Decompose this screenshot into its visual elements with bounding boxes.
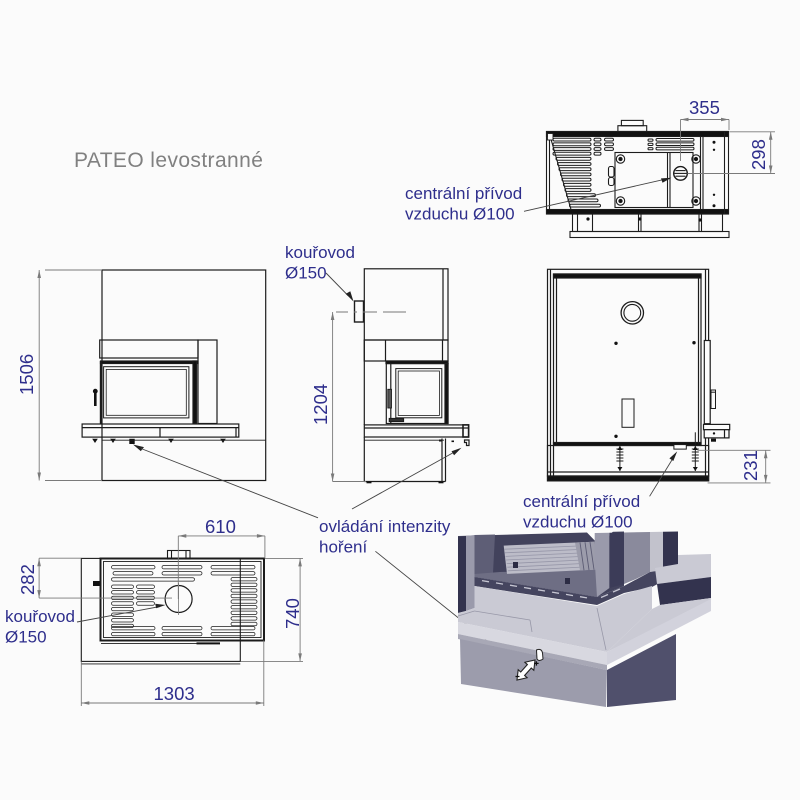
svg-text:1303: 1303	[154, 683, 195, 704]
svg-text:355: 355	[689, 97, 720, 118]
svg-text:740: 740	[282, 598, 303, 629]
svg-text:hoření: hoření	[319, 538, 367, 557]
svg-text:ovládání intenzity: ovládání intenzity	[319, 517, 451, 536]
svg-text:Ø150: Ø150	[5, 628, 47, 647]
svg-text:PATEO levostranné: PATEO levostranné	[74, 149, 263, 172]
svg-text:vzduchu Ø100: vzduchu Ø100	[523, 513, 633, 532]
svg-text:610: 610	[205, 516, 236, 537]
svg-text:Ø150: Ø150	[285, 264, 327, 283]
svg-text:231: 231	[740, 450, 761, 481]
svg-text:1506: 1506	[16, 354, 37, 395]
svg-text:298: 298	[748, 139, 769, 170]
svg-text:282: 282	[17, 564, 38, 595]
svg-text:centrální přívod: centrální přívod	[523, 492, 640, 511]
svg-text:1204: 1204	[310, 384, 331, 425]
svg-text:vzduchu Ø100: vzduchu Ø100	[405, 205, 515, 224]
svg-text:kouřovod: kouřovod	[5, 607, 75, 626]
svg-text:centrální přívod: centrální přívod	[405, 184, 522, 203]
svg-text:kouřovod: kouřovod	[285, 243, 355, 262]
